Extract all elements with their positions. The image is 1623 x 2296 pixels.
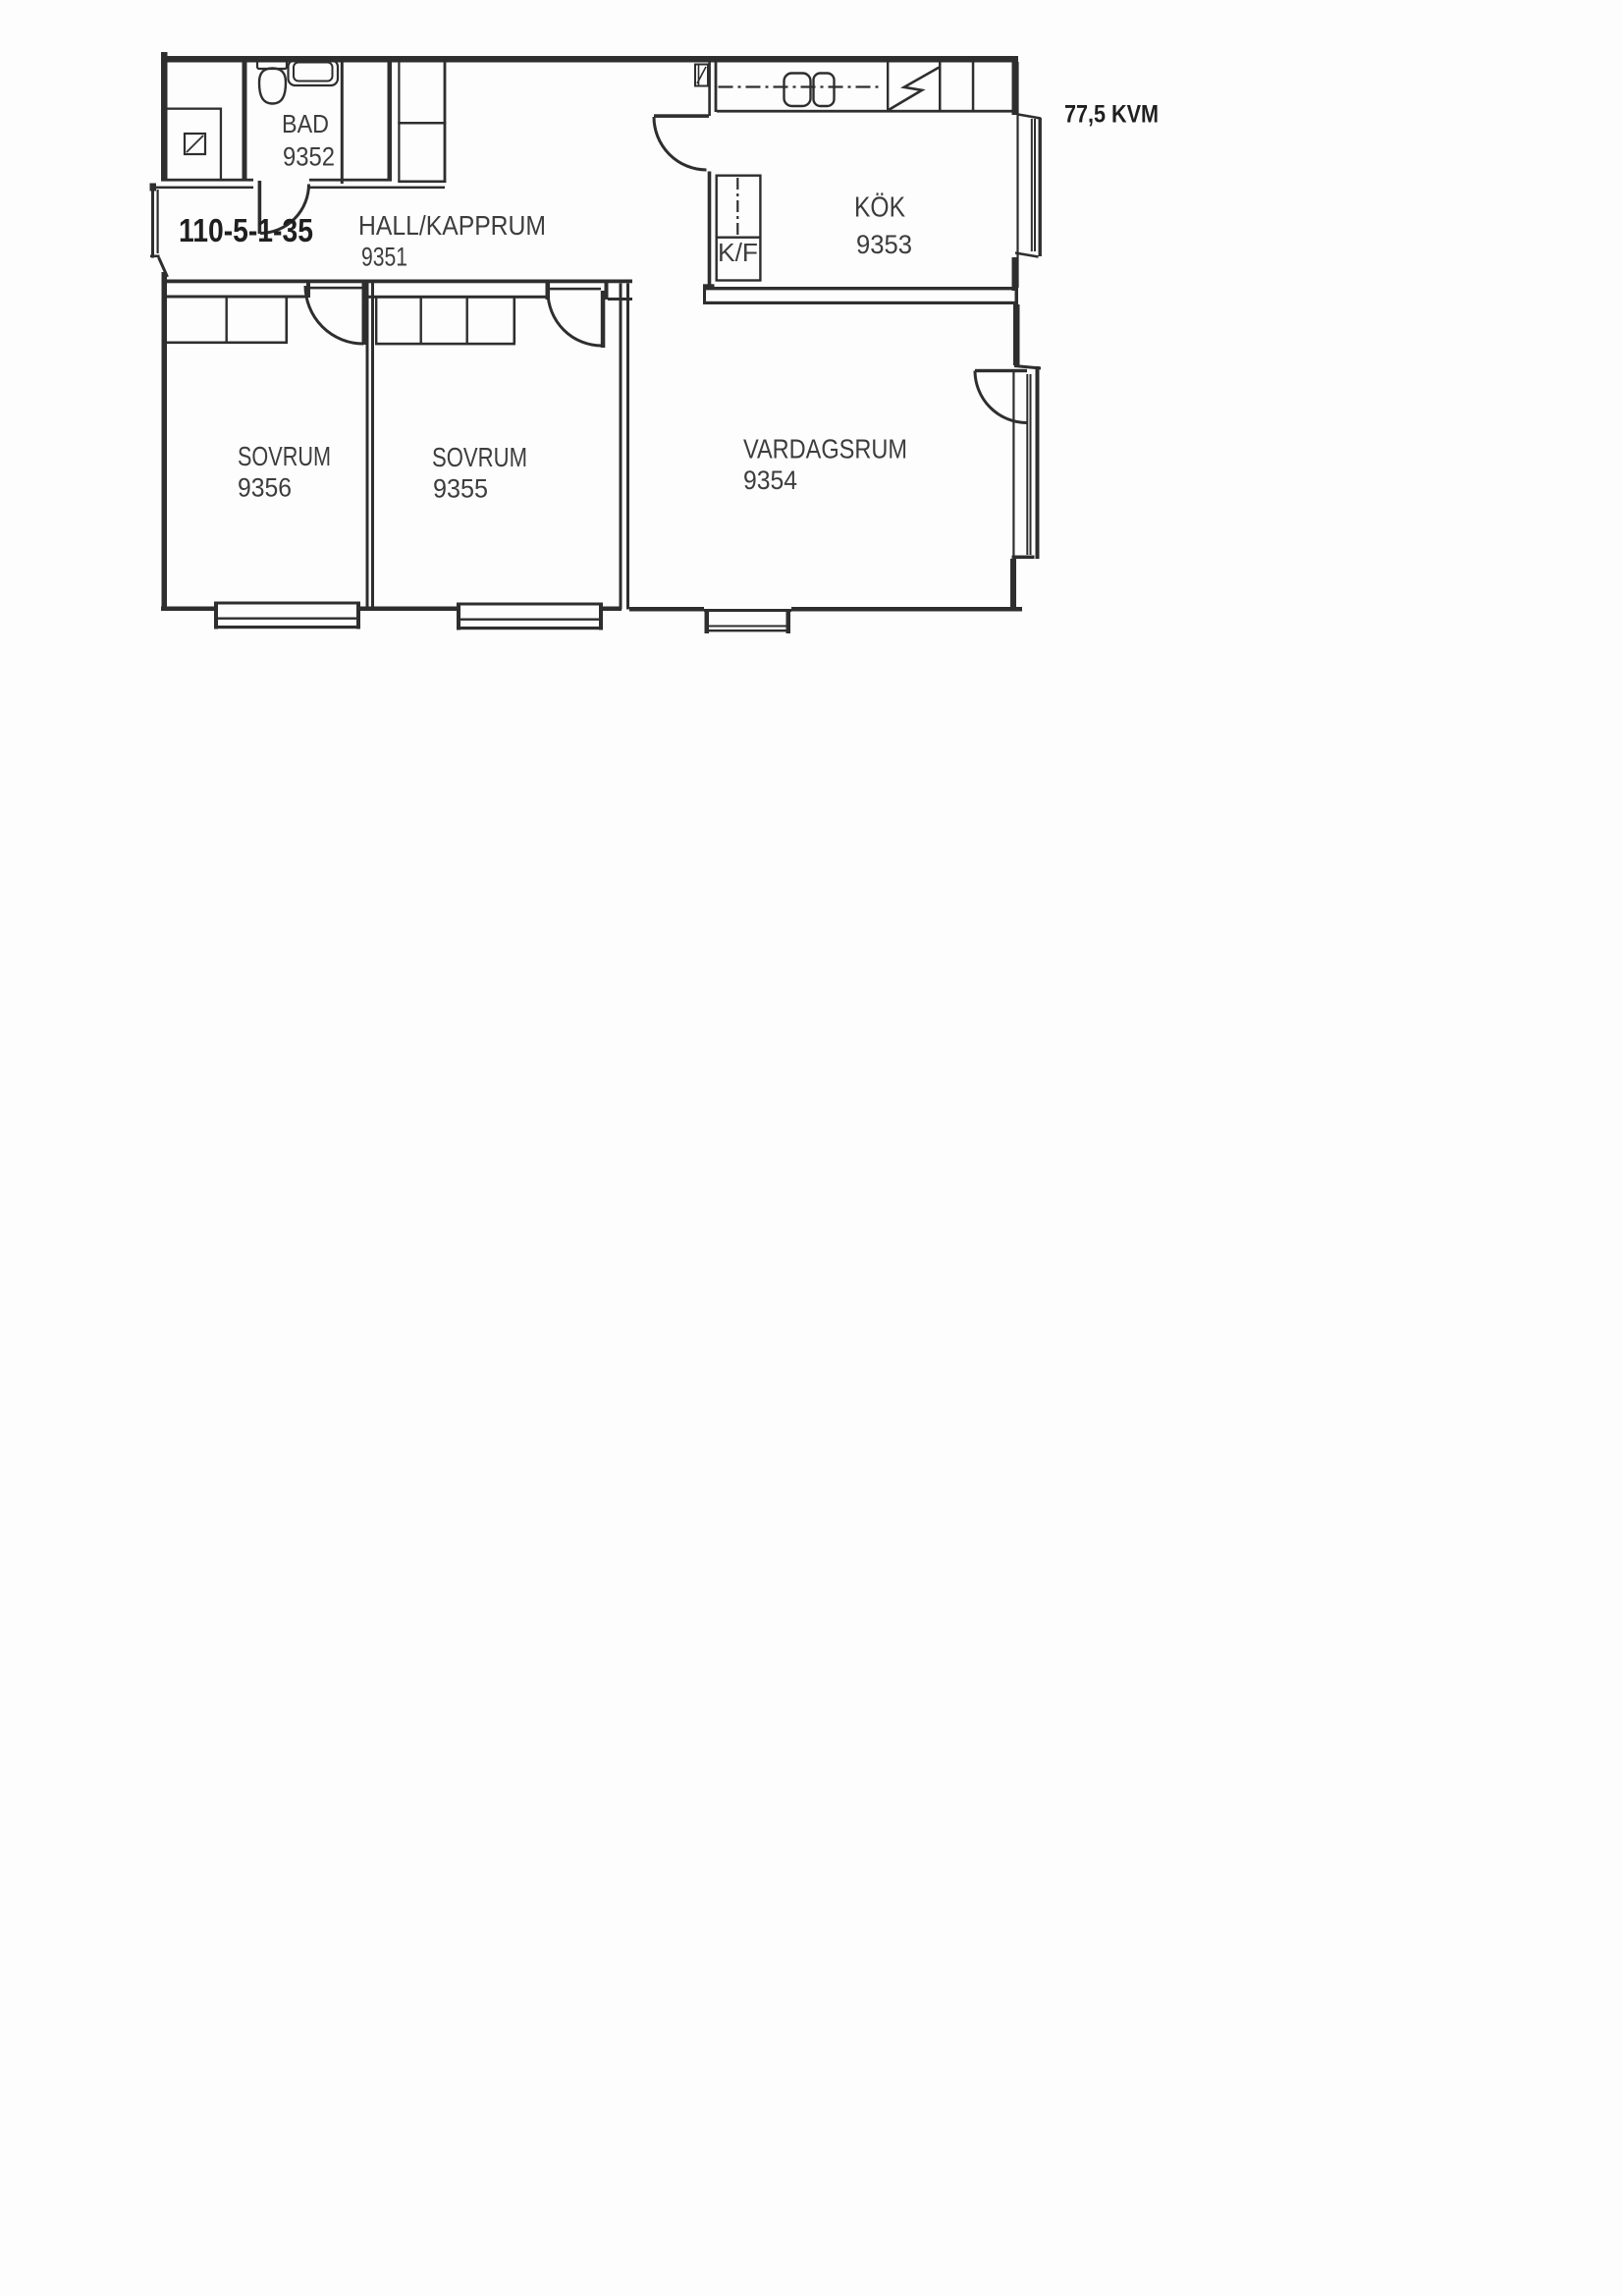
svg-text:SOVRUM: SOVRUM xyxy=(432,442,527,472)
svg-text:KÖK: KÖK xyxy=(854,192,906,224)
svg-text:HALL/KAPPRUM: HALL/KAPPRUM xyxy=(358,210,546,241)
svg-text:9354: 9354 xyxy=(743,465,797,495)
svg-text:110-5-1-35: 110-5-1-35 xyxy=(179,212,313,248)
svg-text:9351: 9351 xyxy=(361,243,407,272)
svg-text:77,5 KVM: 77,5 KVM xyxy=(1064,101,1159,129)
svg-text:VARDAGSRUM: VARDAGSRUM xyxy=(743,434,907,465)
svg-text:9355: 9355 xyxy=(433,474,488,504)
svg-text:K/F: K/F xyxy=(718,238,758,267)
svg-text:9353: 9353 xyxy=(856,230,912,259)
svg-text:9356: 9356 xyxy=(238,473,292,503)
svg-text:BAD: BAD xyxy=(282,109,329,138)
svg-text:SOVRUM: SOVRUM xyxy=(238,441,331,471)
svg-text:9352: 9352 xyxy=(283,142,335,172)
